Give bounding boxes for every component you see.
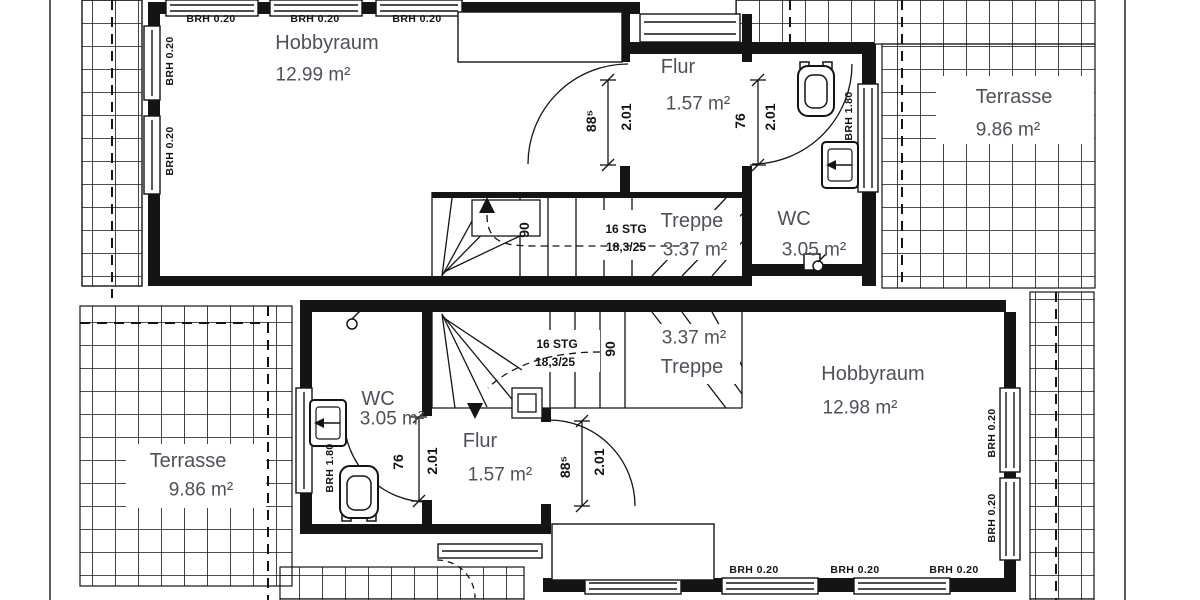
floor-plan: BRH 0.20 BRH 0.20 BRH 0.20 BRH 0.20 BRH … [0,0,1200,600]
tile-strip-bottom-right [1030,292,1094,600]
room-area-terrasse-bottom: 9.86 m² [169,481,233,500]
window-parapet-label: BRH 1.80 [844,91,855,140]
room-label-flur-bottom: Flur [463,431,497,451]
room-area-wc-bottom: 3.05 m² [360,410,424,429]
stair-door-width-dim: 90 [603,341,617,357]
door-width-dim: 76 [733,113,747,129]
stairs-top [432,192,742,276]
room-area-terrasse-top: 9.86 m² [976,121,1040,140]
window-parapet-label: BRH 1.80 [325,443,336,492]
window-parapet-label: BRH 0.20 [165,126,176,175]
room-area-hobbyraum-top: 12.99 m² [276,66,351,85]
stair-riserun-label: 18,3/25 [535,356,575,368]
window-parapet-label: BRH 0.20 [290,14,339,25]
stair-steps-label: 16 STG [605,223,646,235]
room-label-terrasse-bottom: Terrasse [150,451,227,471]
tile-strip-top-left [82,0,142,298]
stair-steps-label: 16 STG [536,338,577,350]
room-label-wc-bottom: WC [361,389,394,409]
window-parapet-label: BRH 0.20 [987,408,998,457]
door-width-dim: 88⁵ [558,456,572,478]
room-area-treppe-top: 3.37 m² [663,241,727,260]
room-label-treppe-top: Treppe [661,211,724,231]
door-height-dim: 2.01 [763,103,777,130]
room-label-wc-top: WC [777,209,810,229]
room-label-flur-top: Flur [661,57,695,77]
door-width-dim: 76 [391,454,405,470]
window-parapet-label: BRH 0.20 [186,14,235,25]
room-area-hobbyraum-bottom: 12.98 m² [823,399,898,418]
window-parapet-label: BRH 0.20 [987,493,998,542]
window-parapet-label: BRH 0.20 [165,36,176,85]
door-height-dim: 2.01 [425,447,439,474]
room-label-hobbyraum-bottom: Hobbyraum [821,364,924,384]
stair-riserun-label: 18,3/25 [606,241,646,253]
door-width-dim: 88⁵ [584,110,598,132]
window-parapet-label: BRH 0.20 [929,565,978,576]
door-height-dim: 2.01 [592,448,606,475]
room-area-flur-top: 1.57 m² [666,95,730,114]
stair-door-width-dim: 90 [517,222,531,238]
room-label-hobbyraum-top: Hobbyraum [275,33,378,53]
window-parapet-label: BRH 0.20 [830,565,879,576]
room-label-terrasse-top: Terrasse [976,87,1053,107]
window-parapet-label: BRH 0.20 [729,565,778,576]
room-label-treppe-bottom: Treppe [661,357,724,377]
room-area-treppe-bottom: 3.37 m² [662,329,726,348]
room-area-flur-bottom: 1.57 m² [468,466,532,485]
room-area-wc-top: 3.05 m² [782,241,846,260]
window-parapet-label: BRH 0.20 [392,14,441,25]
door-height-dim: 2.01 [619,103,633,130]
